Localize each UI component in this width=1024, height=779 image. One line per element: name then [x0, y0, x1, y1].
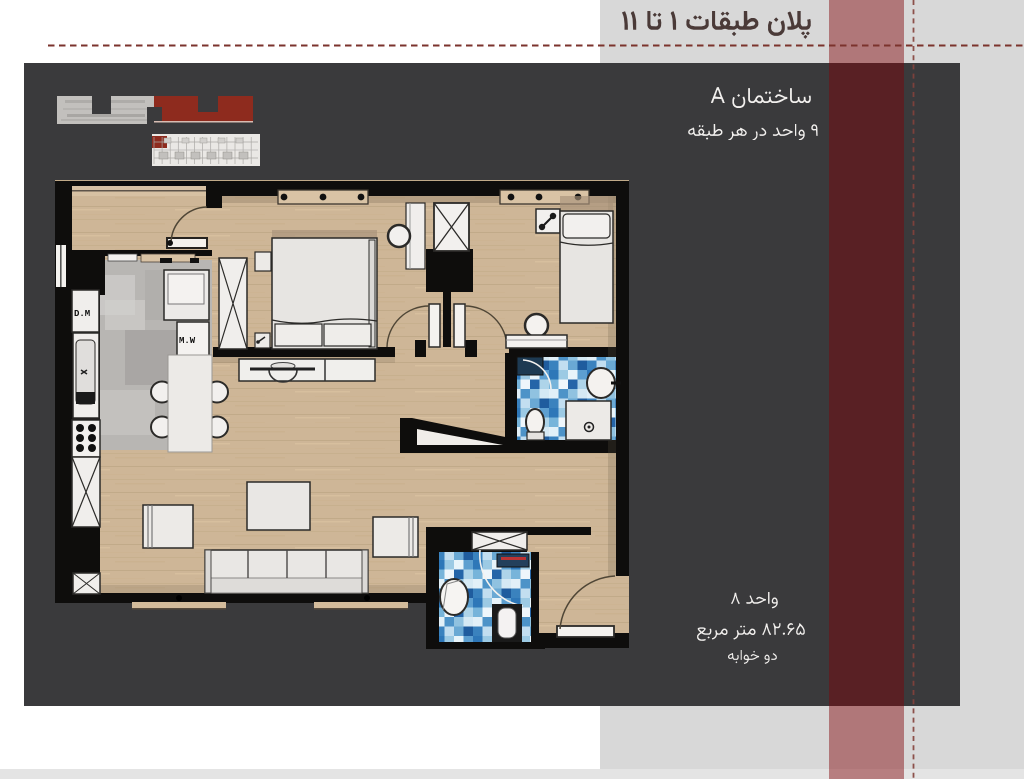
svg-text:D.M: D.M	[74, 309, 90, 319]
svg-text:M.W: M.W	[179, 336, 196, 346]
